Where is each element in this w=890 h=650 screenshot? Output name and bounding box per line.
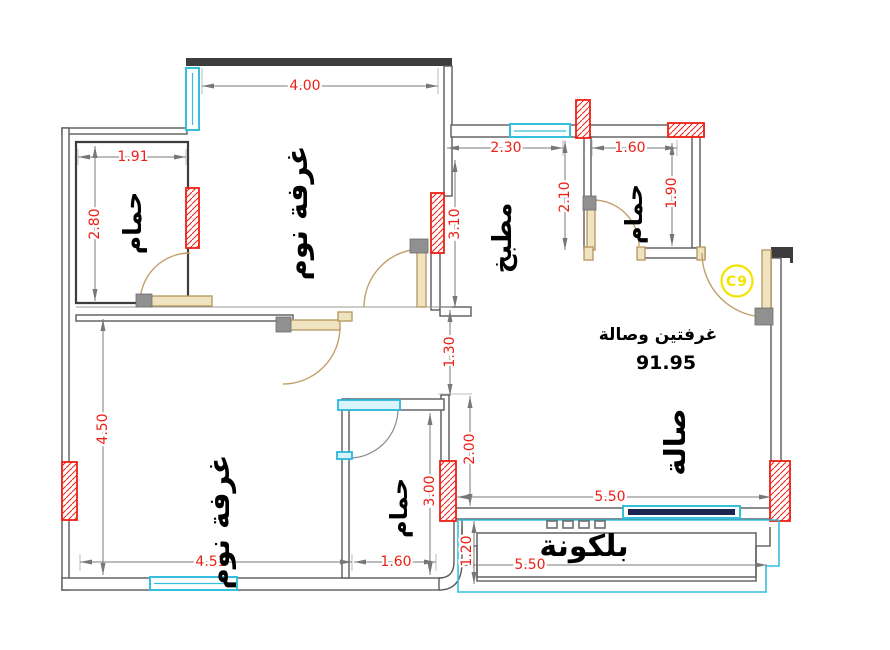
door-post	[637, 247, 645, 260]
wall-entry-tick	[790, 247, 793, 263]
column-kitchen-top	[576, 100, 590, 138]
wall-bedroom2-top	[76, 315, 293, 321]
dim-bath-tr-width: 1.60	[614, 140, 645, 156]
door-entry-icon	[762, 250, 771, 314]
door-hinge-icon	[755, 308, 773, 325]
balcony-notch	[547, 521, 557, 528]
floor-plan-page: 4.00 1.91 2.80 2.30 1.60 2.10 1.90 3.10 …	[0, 0, 890, 650]
column-bedroom-kitchen	[431, 193, 444, 253]
dim-bath-b-width: 1.60	[380, 554, 411, 570]
door-post	[338, 312, 352, 321]
room-label-bathroom-bottom: حمام	[385, 478, 413, 538]
wall-entry-header	[771, 247, 793, 258]
window-hall-glass	[628, 509, 735, 515]
door-swing-arc	[364, 249, 422, 307]
column-top-right	[668, 123, 704, 137]
dim-kitchen-depth: 2.10	[557, 181, 573, 212]
dim-corridor-width: 1.30	[442, 336, 458, 367]
door-bedroom-top-icon	[417, 245, 426, 307]
room-label-hall: صالة	[658, 408, 692, 475]
balcony-notch	[579, 521, 589, 528]
wall-outer-top-left	[62, 128, 187, 134]
apartment-type-label: غرفتين وصالة	[599, 325, 718, 345]
wall-corridor-stub	[440, 307, 471, 316]
door-post	[584, 247, 593, 260]
door-bath-bottom-leaf	[337, 452, 352, 459]
column-hall-right	[770, 461, 790, 521]
wall-bath-tr-right	[692, 137, 700, 248]
dim-bath-tl-depth: 2.80	[87, 208, 103, 239]
room-label-bedroom-top: غرفة نوم	[280, 146, 314, 281]
balcony-notch	[563, 521, 573, 528]
wall-bath-tr-bottom	[639, 248, 705, 258]
door-hinge-icon	[410, 239, 428, 253]
room-label-kitchen: مطبخ	[488, 203, 518, 274]
column-bath-tl	[186, 188, 199, 248]
door-post	[697, 247, 705, 260]
apartment-area-value: 91.95	[636, 352, 696, 374]
door-bath-bottom-icon	[338, 400, 400, 410]
room-label-bathroom-top-left: حمام	[118, 192, 147, 255]
dim-bath-tr-depth: 1.90	[664, 177, 680, 208]
dim-hall-width: 5.50	[594, 489, 625, 505]
dim-balcony-depth: 1.20	[459, 535, 475, 566]
door-hinge-icon	[583, 196, 596, 210]
balcony-notch	[595, 521, 605, 528]
door-swing-arc	[283, 327, 340, 384]
dim-hall-flank: 2.00	[462, 433, 478, 464]
room-label-balcony: بلكونة	[539, 529, 628, 564]
room-label-bedroom-bottom: غرفة نوم	[202, 455, 236, 590]
room-label-bathroom-top-right: حمام	[620, 184, 648, 244]
wall-bedroom-top	[186, 58, 452, 66]
dim-kitchen-flank: 3.10	[447, 208, 463, 239]
wall-corner-inner	[439, 520, 454, 578]
door-hinge-icon	[276, 317, 291, 332]
wall-outer-bottom	[62, 578, 439, 590]
door-swing-arc	[350, 409, 398, 458]
column-hall-left	[440, 461, 456, 521]
dim-kitchen-width: 2.30	[490, 140, 521, 156]
door-hinge-icon	[136, 294, 152, 307]
dim-bedroom-b-depth: 4.50	[95, 413, 111, 444]
room-labels: حمام غرفة نوم مطبخ حمام صالة غرفة نوم حم…	[118, 146, 717, 590]
door-bedroom-bottom-icon	[288, 320, 340, 330]
floor-plan-canvas: 4.00 1.91 2.80 2.30 1.60 2.10 1.90 3.10 …	[0, 0, 890, 650]
wall-bedroom-right-jamb	[431, 253, 440, 310]
wall-bath-b-left	[342, 399, 349, 578]
column-outer-left	[62, 462, 77, 520]
wall-outer-right	[771, 258, 781, 462]
unit-badge: C9	[722, 266, 753, 297]
unit-badge-code: C9	[726, 274, 748, 290]
dim-bath-b-depth: 3.00	[422, 475, 438, 506]
dim-bedroom-top-width: 4.00	[289, 78, 320, 94]
dim-bath-tl-width: 1.91	[117, 149, 148, 165]
